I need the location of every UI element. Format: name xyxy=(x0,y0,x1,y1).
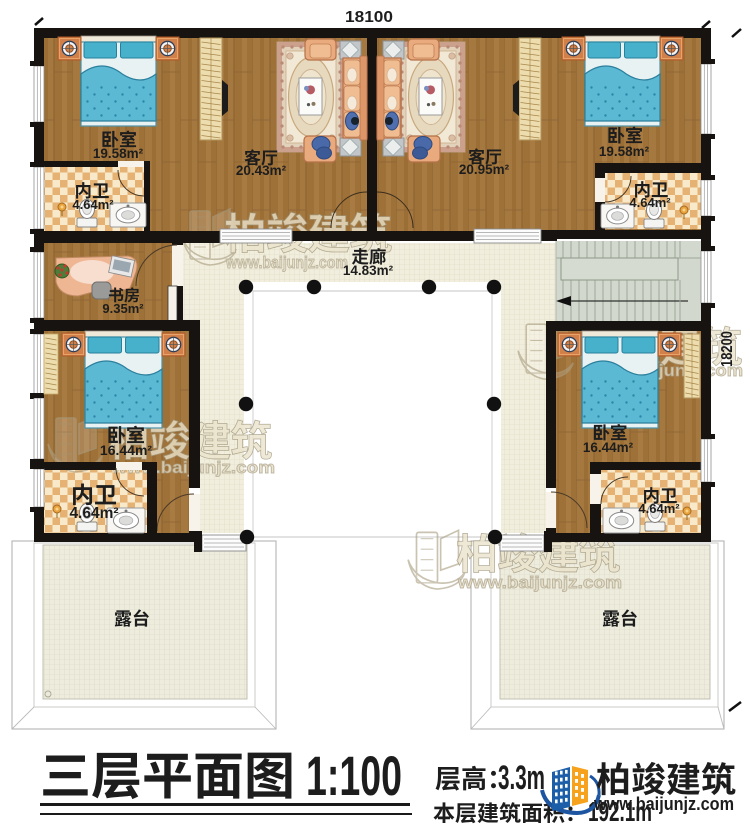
svg-text:18200: 18200 xyxy=(719,331,736,367)
svg-text:16.44m²: 16.44m² xyxy=(583,440,634,455)
svg-text:9.35m²: 9.35m² xyxy=(102,301,144,316)
svg-text:20.43m²: 20.43m² xyxy=(236,163,287,178)
svg-text:www.baijunjz.com: www.baijunjz.com xyxy=(593,794,734,814)
svg-text:20.95m²: 20.95m² xyxy=(459,162,510,177)
svg-text:4.64m²: 4.64m² xyxy=(629,195,671,210)
svg-text:19.58m²: 19.58m² xyxy=(599,144,650,159)
svg-text:www.baijunjz.com: www.baijunjz.com xyxy=(457,573,622,592)
svg-text:4.64m²: 4.64m² xyxy=(638,501,680,516)
svg-text:www.baijunjz.com: www.baijunjz.com xyxy=(225,253,348,272)
svg-text:4.64m²: 4.64m² xyxy=(69,505,118,522)
svg-text:18100: 18100 xyxy=(345,9,393,26)
svg-text:19.58m²: 19.58m² xyxy=(93,146,144,161)
svg-text:16.44m²: 16.44m² xyxy=(100,442,152,458)
svg-text:14.83m²: 14.83m² xyxy=(343,263,394,278)
svg-text:3.3m: 3.3m xyxy=(498,759,545,797)
svg-text:4.64m²: 4.64m² xyxy=(72,197,114,212)
svg-text:1:100: 1:100 xyxy=(306,744,402,807)
